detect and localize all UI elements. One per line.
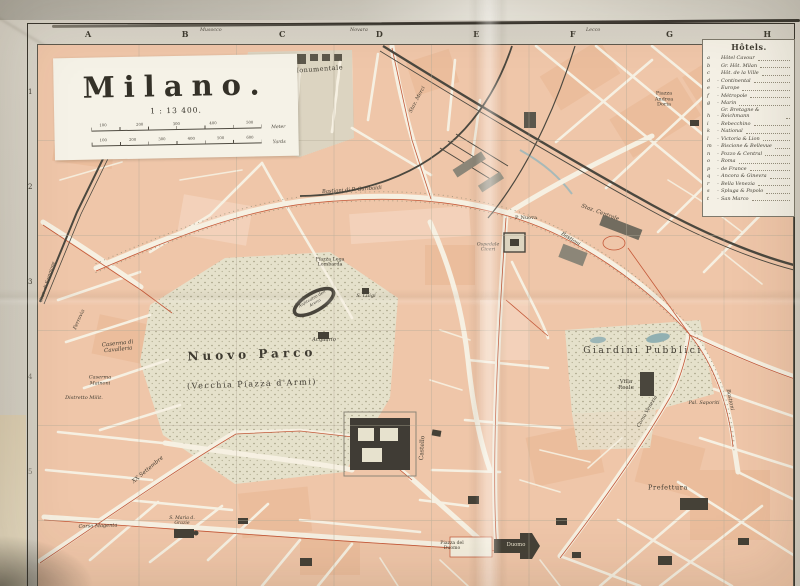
scale-tick-label: 400 xyxy=(209,120,216,125)
map-scale-ratio: 1 : 13 400. xyxy=(54,104,298,118)
grid-letter: G xyxy=(666,29,673,39)
label-porta-nuova: P. Nuova xyxy=(515,216,537,222)
hotel-entry: k - National xyxy=(707,127,791,135)
map-title: Milano. xyxy=(53,67,298,106)
map-title-box: Milano. 1 : 13 400. 100200300400500 Mete… xyxy=(53,54,299,161)
scale-tick-label: 200 xyxy=(129,137,136,142)
scale-unit-yards: Yards xyxy=(273,140,286,145)
scale-tick-label: 500 xyxy=(217,135,224,140)
scale-tick-label: 300 xyxy=(173,121,180,126)
label-prefettura: Prefettura xyxy=(648,484,688,491)
hotel-entry: f - Métropole xyxy=(707,92,791,100)
hotel-entry: a Hôtel Cavour xyxy=(707,54,791,62)
label-palazzo-saporiti: Pal. Saporiti xyxy=(688,401,719,407)
grid-letter: E xyxy=(473,29,479,39)
hotel-entry: c Hôt. de la Ville xyxy=(707,69,791,77)
label-san-luigi: S. Luigi xyxy=(356,294,375,300)
hotel-entry: s - Spluga & Popolo xyxy=(707,187,791,195)
hotel-entry: p - de France xyxy=(707,165,791,173)
hotel-entry: n - Pozzo & Central xyxy=(707,150,791,158)
hotel-entry: i - Rebecchino xyxy=(707,120,791,128)
hotel-entry: h - Gr. Bretagne & Reichmann xyxy=(707,107,791,120)
hotels-legend-title: Hôtels. xyxy=(707,42,791,52)
grid-row-2: 2 xyxy=(28,183,32,191)
scanned-map-page: ABCDEFGH Musocco Novara Lecco 1 2 3 4 5 … xyxy=(0,0,800,586)
margin-destination-novara: Novara xyxy=(350,28,368,33)
scale-tick-label: 600 xyxy=(246,135,253,140)
hotel-entry: q - Ancora & Ginevra xyxy=(707,172,791,180)
label-piazza-lega-lombarda: Piazza Lega Lombarda xyxy=(308,258,352,269)
scale-unit-meters: Meter xyxy=(271,125,285,130)
label-santa-maria-grazie: S. Maria d. Grazie xyxy=(164,516,200,526)
label-caserma-mainoni: Caserma Mainoni xyxy=(79,375,121,386)
scale-tick-label: 100 xyxy=(99,122,106,127)
label-giardini-pubblici: Giardini Pubblici xyxy=(583,346,702,356)
label-piazza-del-duomo: Piazza del Duomo xyxy=(435,541,469,551)
grid-letter: C xyxy=(279,29,285,39)
label-duomo: Duomo xyxy=(507,543,526,549)
label-castello: Castello xyxy=(419,436,427,461)
grid-row-5: 5 xyxy=(28,468,32,476)
margin-destination-lecco: Lecco xyxy=(586,28,600,33)
hotel-entry: m - Biscione & Bellevue xyxy=(707,142,791,150)
grid-row-3: 3 xyxy=(28,278,32,286)
hotel-entry: e - Europe xyxy=(707,84,791,92)
scale-bar-meters: 100200300400500 Meter xyxy=(91,119,261,131)
grid-letter: D xyxy=(376,29,383,39)
scale-bar-yards: 100200300400500600 Yards xyxy=(92,134,262,146)
grid-row-1: 1 xyxy=(28,88,32,96)
grid-letter: F xyxy=(570,29,576,39)
page-corner-shadow xyxy=(0,520,130,586)
label-piazza-andrea-doria: Piazza Andrea Doria xyxy=(649,92,679,109)
margin-destination-musocco: Musocco xyxy=(200,28,222,33)
hotels-legend: Hôtels. a Hôtel Cavour b Gr. Hôt. Milan xyxy=(702,39,795,217)
grid-column-letters: ABCDEFGH xyxy=(27,25,795,43)
hotel-entry: d - Continental xyxy=(707,77,791,85)
label-distretto-militare: Distretto Milit. xyxy=(65,396,103,402)
hotel-list: a Hôtel Cavour b Gr. Hôt. Milan c Hôt. d… xyxy=(707,54,791,202)
hotel-entry: t - San Marco xyxy=(707,195,791,203)
scale-tick-label: 300 xyxy=(158,136,165,141)
scale-tick-label: 400 xyxy=(188,136,195,141)
grid-letter: A xyxy=(85,29,91,39)
hotel-entry: o - Roma xyxy=(707,157,791,165)
grid-letter: B xyxy=(182,29,189,39)
hotel-entry: l - Victoria & Lion xyxy=(707,135,791,143)
label-villa-reale: Villa Reale xyxy=(614,379,638,391)
scale-tick-label: 500 xyxy=(246,120,253,125)
hotel-entry: b Gr. Hôt. Milan xyxy=(707,62,791,70)
scale-tick-label: 100 xyxy=(100,137,107,142)
scale-tick-label: 200 xyxy=(136,122,143,127)
grid-row-4: 4 xyxy=(28,373,32,381)
hotel-entry: g - Marin xyxy=(707,99,791,107)
hotel-entry: r - Bella Venezia xyxy=(707,180,791,188)
label-ospedale-ciceri: Ospedale Ciceri xyxy=(472,243,504,254)
grid-letter: H xyxy=(763,29,771,39)
label-acquario: Acquario xyxy=(312,338,336,344)
